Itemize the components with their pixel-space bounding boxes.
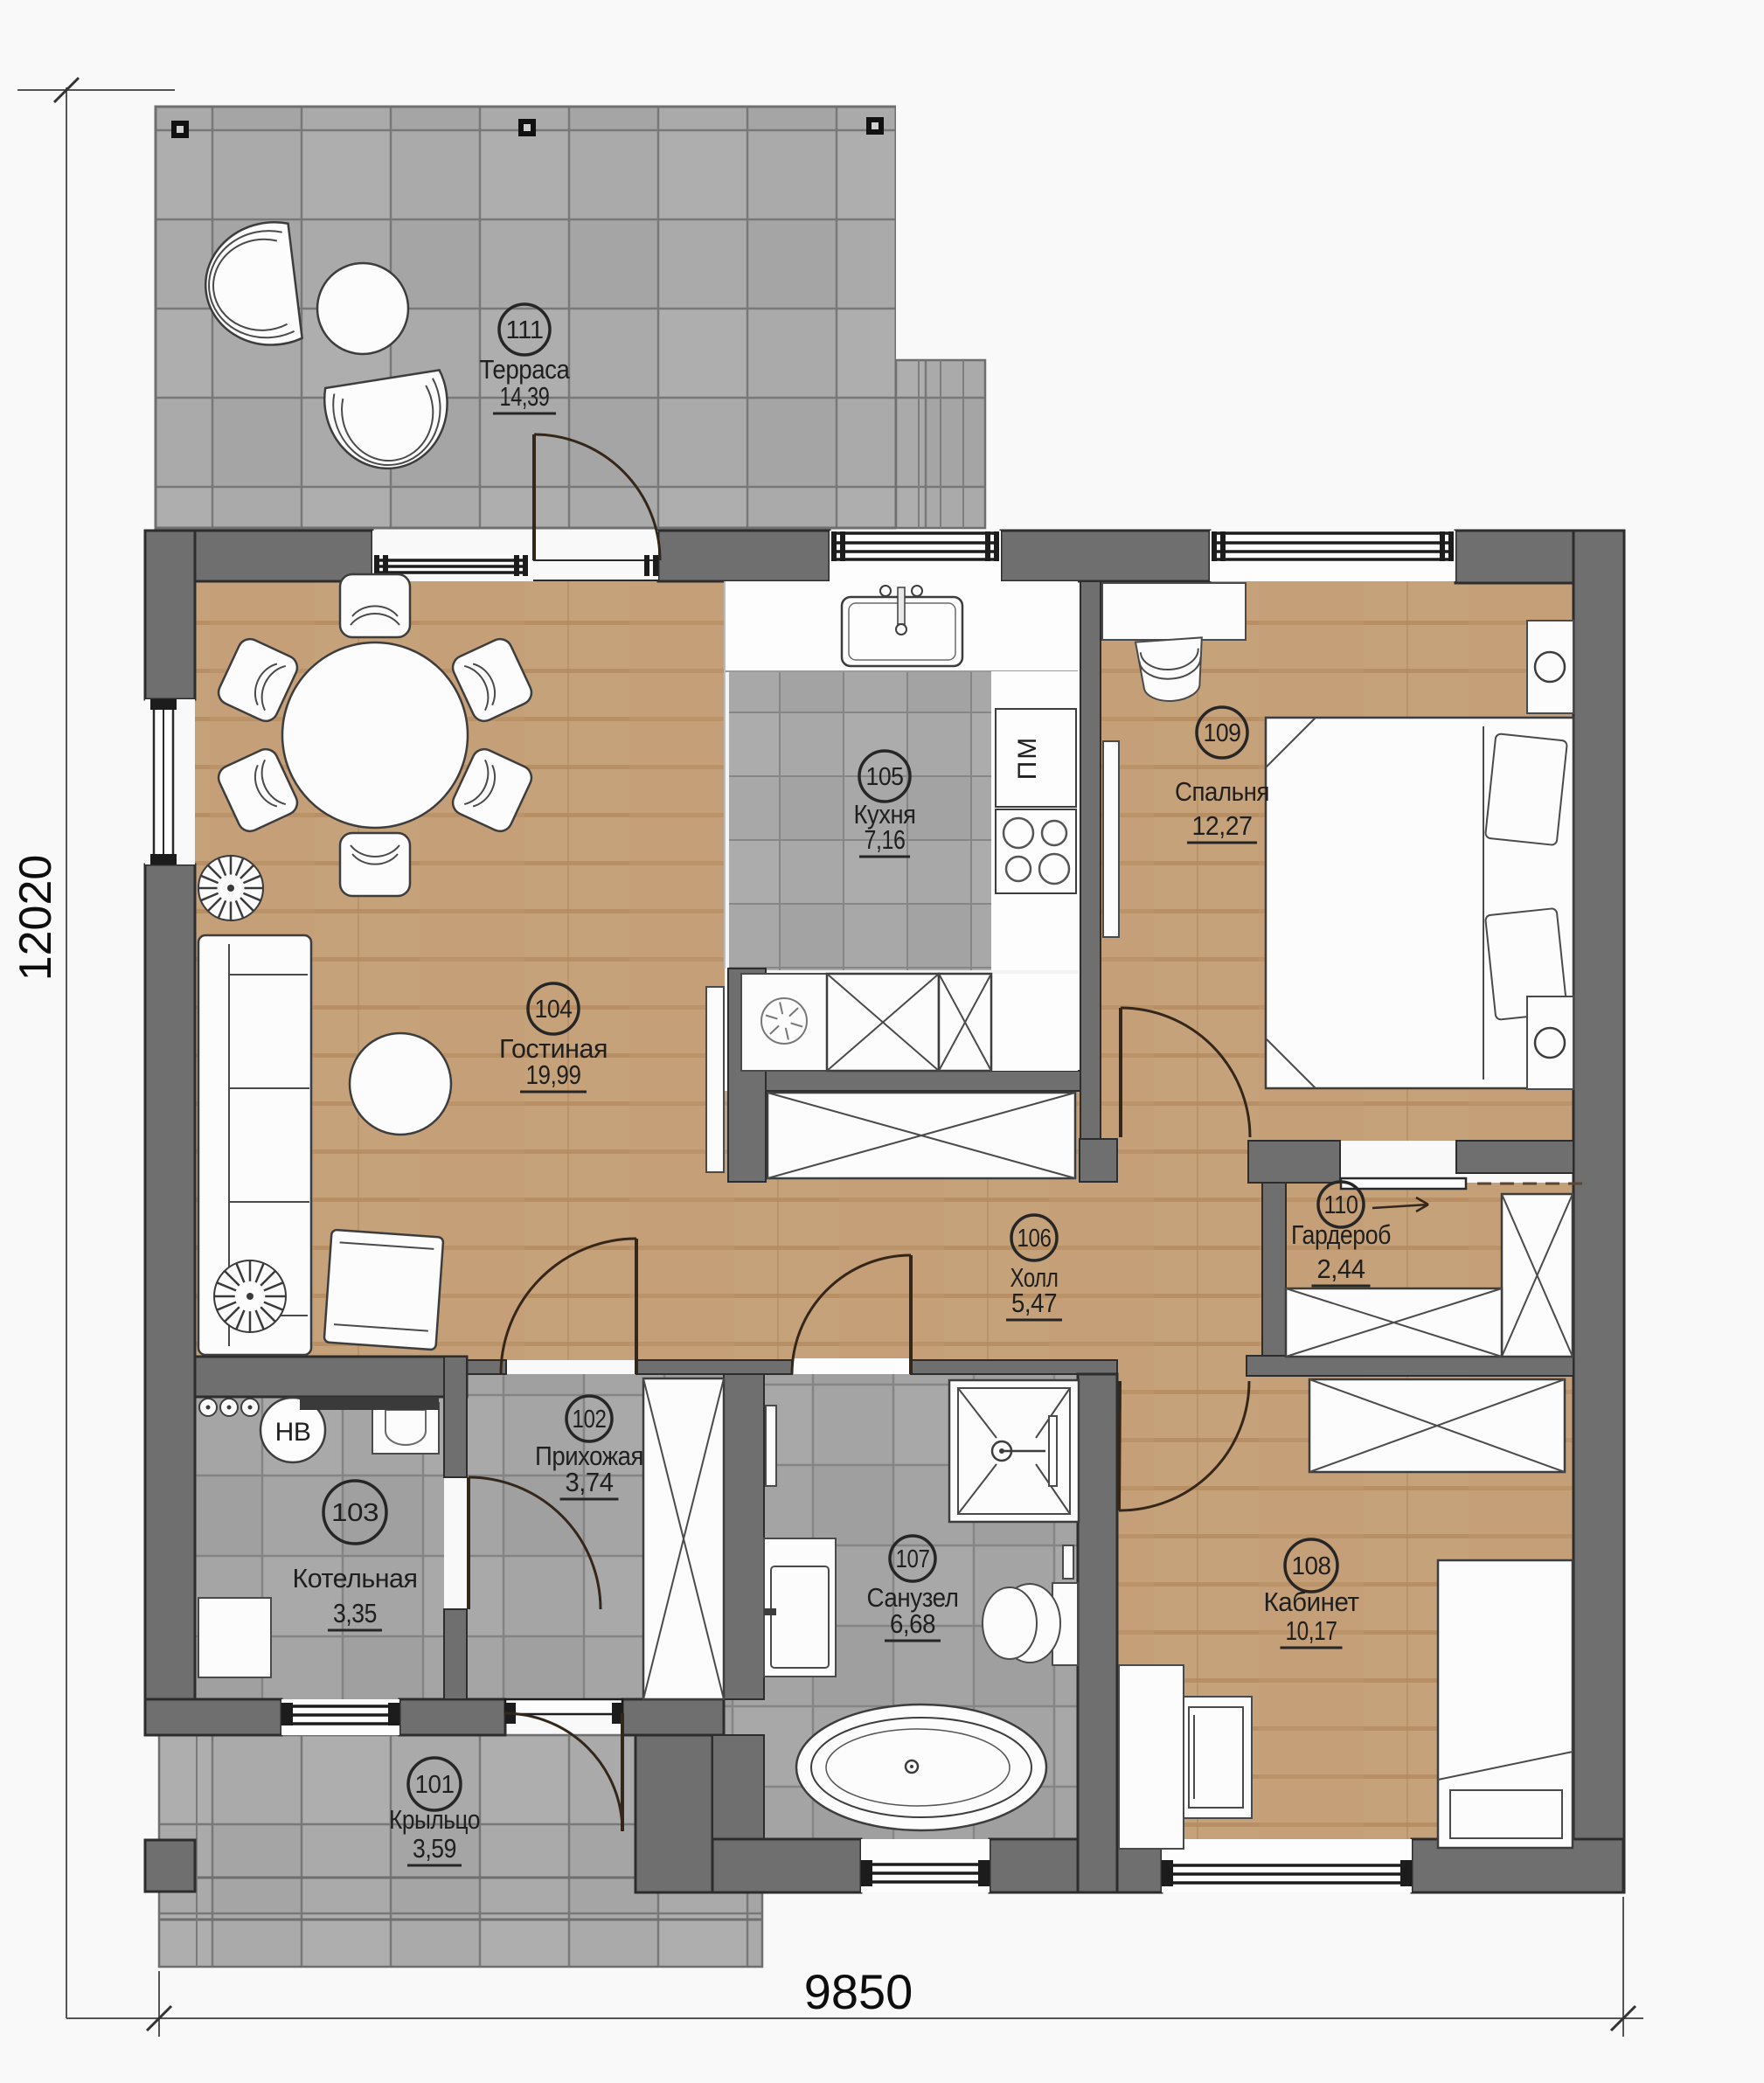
svg-text:9850: 9850 (804, 1964, 913, 2019)
svg-text:Спальня: Спальня (1175, 776, 1269, 807)
svg-text:НВ: НВ (275, 1418, 311, 1447)
svg-text:110: 110 (1324, 1191, 1358, 1219)
svg-text:6,68: 6,68 (890, 1608, 935, 1639)
svg-text:101: 101 (415, 1771, 455, 1799)
svg-text:7,16: 7,16 (865, 824, 906, 855)
svg-text:107: 107 (896, 1545, 930, 1573)
svg-text:2,44: 2,44 (1317, 1253, 1365, 1284)
svg-text:10,17: 10,17 (1286, 1615, 1337, 1646)
svg-text:109: 109 (1204, 719, 1241, 747)
svg-text:111: 111 (506, 316, 544, 344)
svg-text:Кабинет: Кабинет (1264, 1587, 1359, 1617)
svg-text:3,35: 3,35 (333, 1598, 377, 1628)
svg-text:3,74: 3,74 (566, 1467, 614, 1497)
svg-text:Терраса: Терраса (480, 354, 571, 385)
svg-text:19,99: 19,99 (526, 1059, 581, 1090)
svg-text:Гардероб: Гардероб (1291, 1219, 1391, 1250)
svg-text:104: 104 (535, 996, 573, 1024)
svg-text:108: 108 (1292, 1552, 1331, 1580)
svg-text:103: 103 (331, 1499, 378, 1527)
svg-text:5,47: 5,47 (1011, 1288, 1057, 1318)
svg-text:12020: 12020 (10, 855, 61, 982)
svg-text:ПМ: ПМ (1013, 736, 1042, 781)
svg-text:102: 102 (573, 1406, 607, 1434)
svg-text:105: 105 (866, 763, 904, 791)
svg-text:14,39: 14,39 (500, 381, 550, 412)
svg-text:Котельная: Котельная (293, 1563, 418, 1593)
svg-text:12,27: 12,27 (1192, 810, 1253, 841)
svg-text:Крыльцо: Крыльцо (389, 1804, 480, 1835)
svg-text:106: 106 (1017, 1225, 1052, 1253)
svg-text:3,59: 3,59 (413, 1833, 456, 1864)
